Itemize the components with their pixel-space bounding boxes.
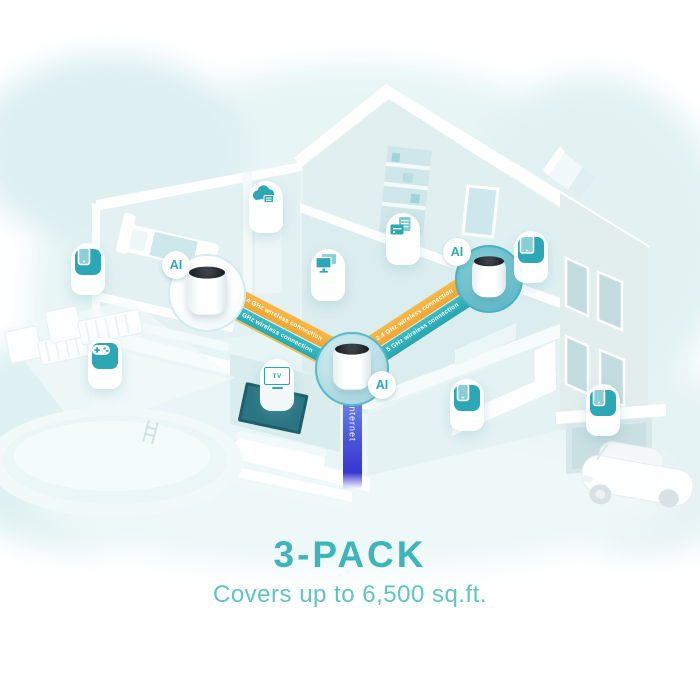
deco-router-icon [187, 270, 227, 315]
ai-badge: AI [368, 371, 396, 399]
dual-monitor-icon [311, 249, 345, 301]
product-hero-image: Internet ‹‹‹ 2.4 GHz wireless connection… [0, 0, 700, 700]
tv-icon-label: TV [273, 373, 282, 380]
attic-window [463, 186, 498, 237]
cloud-appliance-icon [249, 181, 283, 233]
deco-router-icon [472, 259, 506, 297]
internet-band: Internet [343, 397, 362, 489]
internet-label: Internet [348, 403, 358, 489]
pack-count-title: 3-PACK [0, 534, 700, 576]
deco-router-icon [333, 347, 371, 390]
tv-icon: TV [260, 359, 294, 411]
coverage-subtitle: Covers up to 6,500 sq.ft. [0, 581, 700, 609]
ai-badge: AI [443, 238, 471, 266]
game-controller-icon [88, 337, 122, 389]
smartphone-icon [71, 243, 105, 295]
ai-badge: AI [162, 251, 190, 279]
smartphone-icon [586, 384, 620, 436]
tablet-icon [514, 231, 548, 283]
smartphone-icon [450, 379, 484, 431]
printer-icon [386, 213, 420, 265]
